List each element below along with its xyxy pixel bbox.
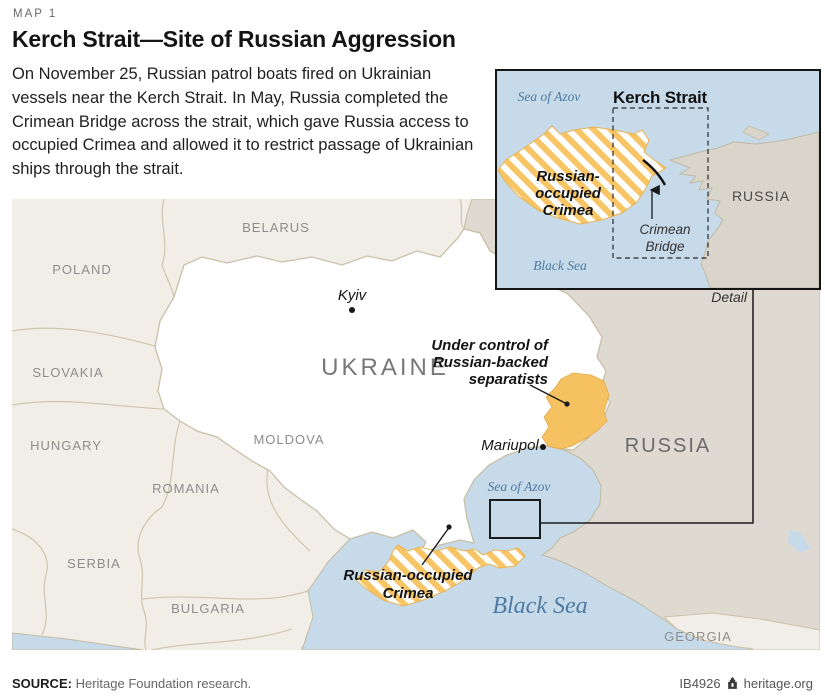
- mariupol-dot: [540, 444, 546, 450]
- inset-title: Kerch Strait: [613, 88, 708, 107]
- svg-text:separatists: separatists: [469, 371, 548, 388]
- svg-text:Crimea: Crimea: [383, 585, 434, 602]
- label-bulgaria: BULGARIA: [171, 601, 245, 616]
- inset-crimea-label: Russian- occupied Crimea: [535, 168, 602, 219]
- inset-label-russia: RUSSIA: [732, 188, 790, 204]
- site-link: heritage.org: [744, 676, 813, 691]
- separatists-leader-dot: [564, 401, 569, 406]
- detail-label: Detail: [711, 289, 747, 305]
- svg-text:Bridge: Bridge: [645, 239, 684, 254]
- label-moldova: MOLDOVA: [253, 432, 324, 447]
- page-title: Kerch Strait—Site of Russian Aggression: [12, 26, 456, 53]
- inset-map-svg: Sea of Azov Kerch Strait Russian- occupi…: [497, 71, 819, 288]
- kyiv-dot: [349, 307, 355, 313]
- map-description: On November 25, Russian patrol boats fir…: [12, 63, 486, 182]
- label-sea-of-azov: Sea of Azov: [488, 479, 551, 494]
- source-text: Heritage Foundation research.: [76, 676, 252, 691]
- inset-label-sea-of-azov: Sea of Azov: [518, 89, 581, 104]
- doc-id: IB4926: [679, 676, 720, 691]
- label-hungary: HUNGARY: [30, 438, 102, 453]
- source-line: SOURCE: Heritage Foundation research.: [12, 676, 251, 691]
- svg-text:Crimean: Crimean: [639, 222, 690, 237]
- label-georgia: GEORGIA: [664, 629, 732, 644]
- svg-text:Russian-: Russian-: [536, 168, 599, 185]
- footer-right: IB4926 heritage.org: [679, 676, 813, 691]
- label-kyiv: Kyiv: [338, 287, 368, 304]
- inset-map: Sea of Azov Kerch Strait Russian- occupi…: [495, 69, 821, 290]
- label-ukraine: UKRAINE: [321, 354, 449, 381]
- svg-text:Crimea: Crimea: [543, 202, 594, 219]
- inset-label-black-sea: Black Sea: [533, 258, 587, 273]
- svg-text:Russian-occupied: Russian-occupied: [343, 567, 473, 584]
- crimea-leader-dot: [446, 524, 451, 529]
- label-poland: POLAND: [52, 262, 111, 277]
- label-romania: ROMANIA: [152, 481, 220, 496]
- heritage-logo-icon: [726, 677, 739, 690]
- label-black-sea: Black Sea: [492, 593, 587, 619]
- svg-text:occupied: occupied: [535, 185, 602, 202]
- label-belarus: BELARUS: [242, 220, 310, 235]
- label-serbia: SERBIA: [67, 556, 121, 571]
- label-slovakia: SLOVAKIA: [32, 365, 103, 380]
- svg-text:Russian-backed: Russian-backed: [433, 354, 549, 371]
- label-russia: RUSSIA: [625, 435, 711, 457]
- label-mariupol: Mariupol: [481, 437, 539, 454]
- footer: SOURCE: Heritage Foundation research. IB…: [0, 668, 825, 696]
- map-kicker: MAP 1: [13, 8, 57, 20]
- svg-text:Under control of: Under control of: [431, 337, 550, 354]
- source-label: SOURCE:: [12, 676, 72, 691]
